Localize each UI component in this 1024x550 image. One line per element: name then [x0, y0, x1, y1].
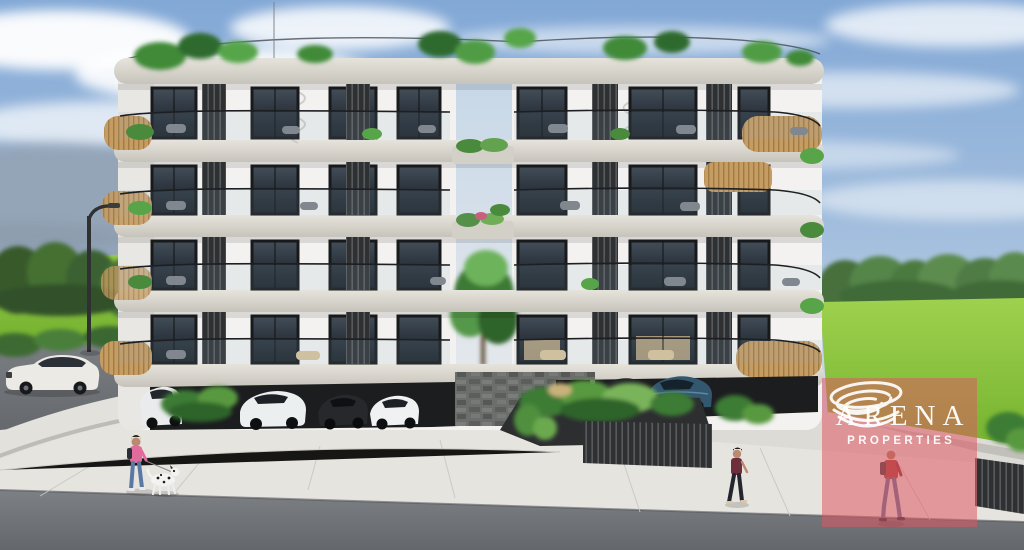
- slat-fence-front: [583, 421, 712, 468]
- watermark-subtitle-text: PROPERTIES: [844, 435, 956, 447]
- architectural-render: ARENA PROPERTIES: [0, 0, 1024, 550]
- watermark-badge: ARENA PROPERTIES: [822, 378, 977, 527]
- slat-fence-right: [975, 458, 1024, 514]
- watermark-brand-text: ARENA: [829, 402, 971, 431]
- apartment-building: [100, 2, 824, 446]
